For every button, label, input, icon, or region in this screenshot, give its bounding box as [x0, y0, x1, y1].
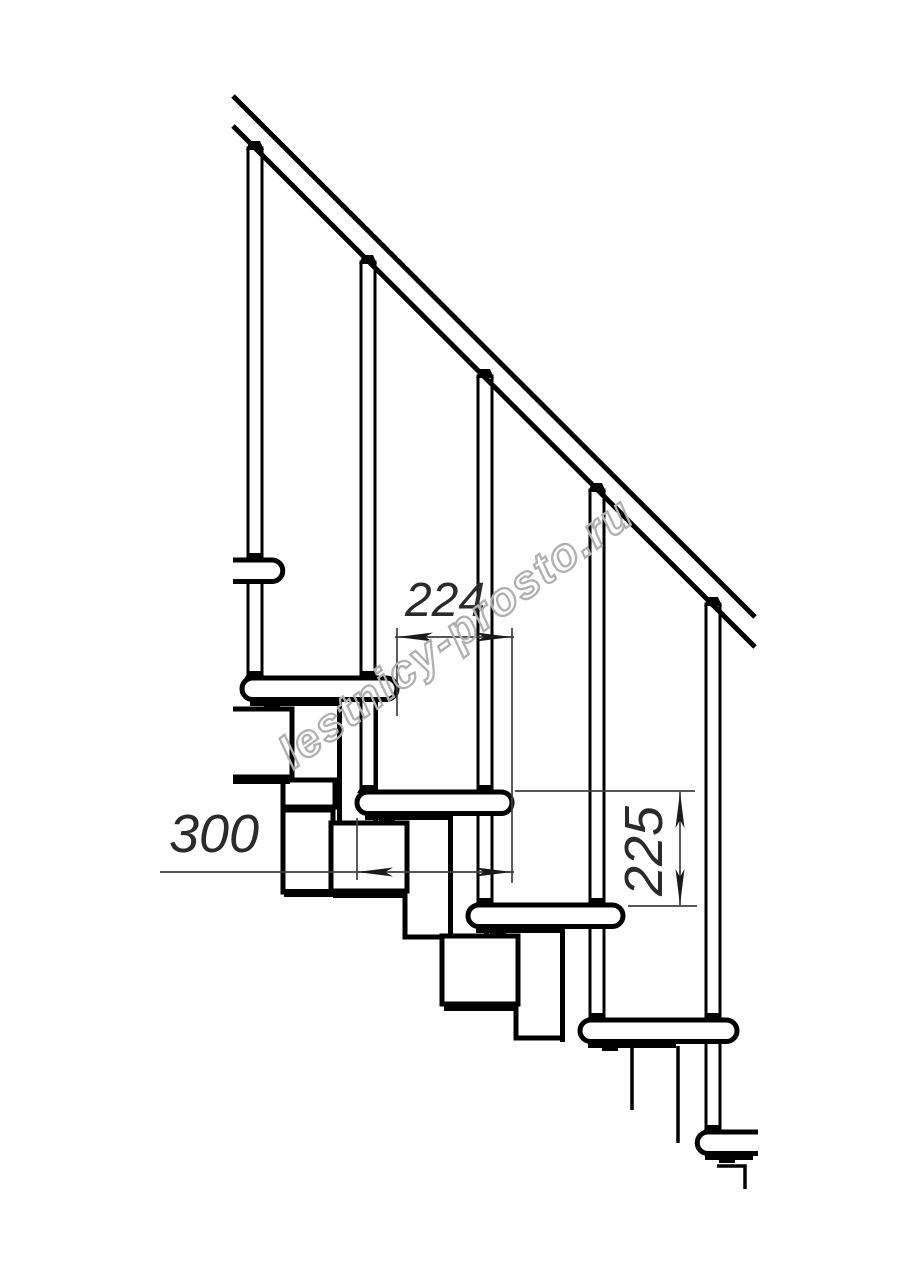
watermark-text: lestnicy-prosto.ru [269, 486, 643, 778]
dimension-label-300: 300 [169, 804, 259, 864]
dimension-label-225: 225 [614, 805, 674, 897]
drawing-canvas: 224 300 225 lestnicy-prosto.ru [0, 0, 914, 1280]
staircase-drawing-svg: 224 300 225 lestnicy-prosto.ru [0, 0, 914, 1280]
